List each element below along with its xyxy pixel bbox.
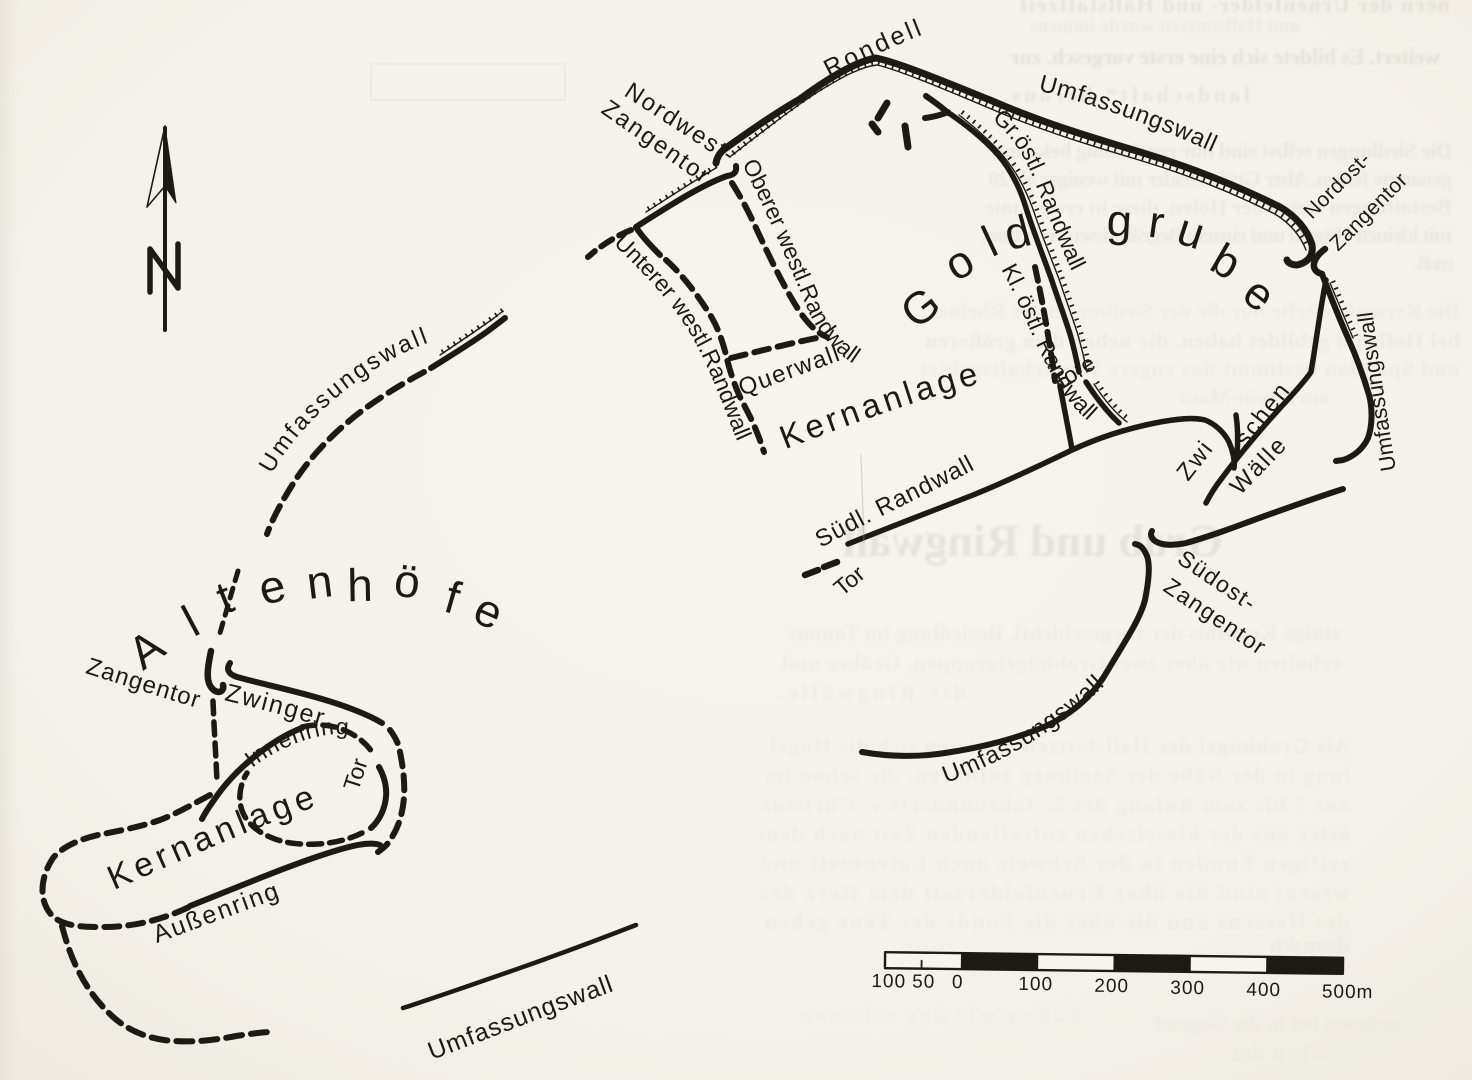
svg-text:lung in der Nähe der Saalburg: lung in der Nähe der Saalburg zuführen, … [765, 762, 1350, 787]
svg-text:aus 7 bis zum Anfang des 5. Ja: aus 7 bis zum Anfang des 5. Jahrhunderts… [762, 792, 1350, 817]
svg-text:0: 0 [952, 972, 964, 993]
svg-text:500m: 500m [1322, 982, 1374, 1004]
svg-text:weitert. Es bildete sich eine: weitert. Es bildete sich eine erste vorg… [1010, 44, 1440, 69]
svg-text:100: 100 [1018, 974, 1053, 995]
svg-text:schen der: schen der [1230, 1040, 1330, 1065]
svg-text:Als Grabhügel der Hallstattzei: Als Grabhügel der Hallstattzeit erwiesen… [770, 733, 1350, 758]
svg-text:ebene sich: ebene sich [1270, 932, 1350, 957]
svg-text:wesent sind die über Urnenfeld: wesent sind die über Urnenfelderzeit dem… [760, 880, 1350, 905]
svg-text:und Hallstattzeit wurde immens: und Hallstattzeit wurde immens [1030, 16, 1300, 37]
svg-text:Die Keramik dürfte nur die der: Die Keramik dürfte nur die der Siedlunge… [930, 298, 1460, 323]
svg-text:nern der Urnenfelder- und Hall: nern der Urnenfelder- und Hallstattzeit [1019, 0, 1450, 17]
svg-text:nehmen bei in die Gegend: nehmen bei in die Gegend [1155, 1010, 1400, 1035]
svg-text:Die Siedlungen selbst sind nur: Die Siedlungen selbst sind nur regelmäßi… [992, 138, 1452, 163]
svg-text:400: 400 [1246, 980, 1281, 1001]
svg-text:g: g [1106, 194, 1134, 246]
svg-text:300: 300 [1170, 978, 1205, 999]
svg-text:zeitigen Funden in der Schweiz: zeitigen Funden in der Schweiz auch Latè… [760, 850, 1350, 875]
svg-text:muß.: muß. [1415, 250, 1454, 275]
svg-text:100: 100 [871, 971, 906, 992]
svg-text:50: 50 [912, 972, 935, 993]
svg-text:öfter aus der klassischen zutr: öfter aus der klassischen zutreffenden Z… [760, 821, 1350, 846]
svg-text:h: h [347, 559, 373, 611]
svg-text:200: 200 [1094, 976, 1129, 997]
